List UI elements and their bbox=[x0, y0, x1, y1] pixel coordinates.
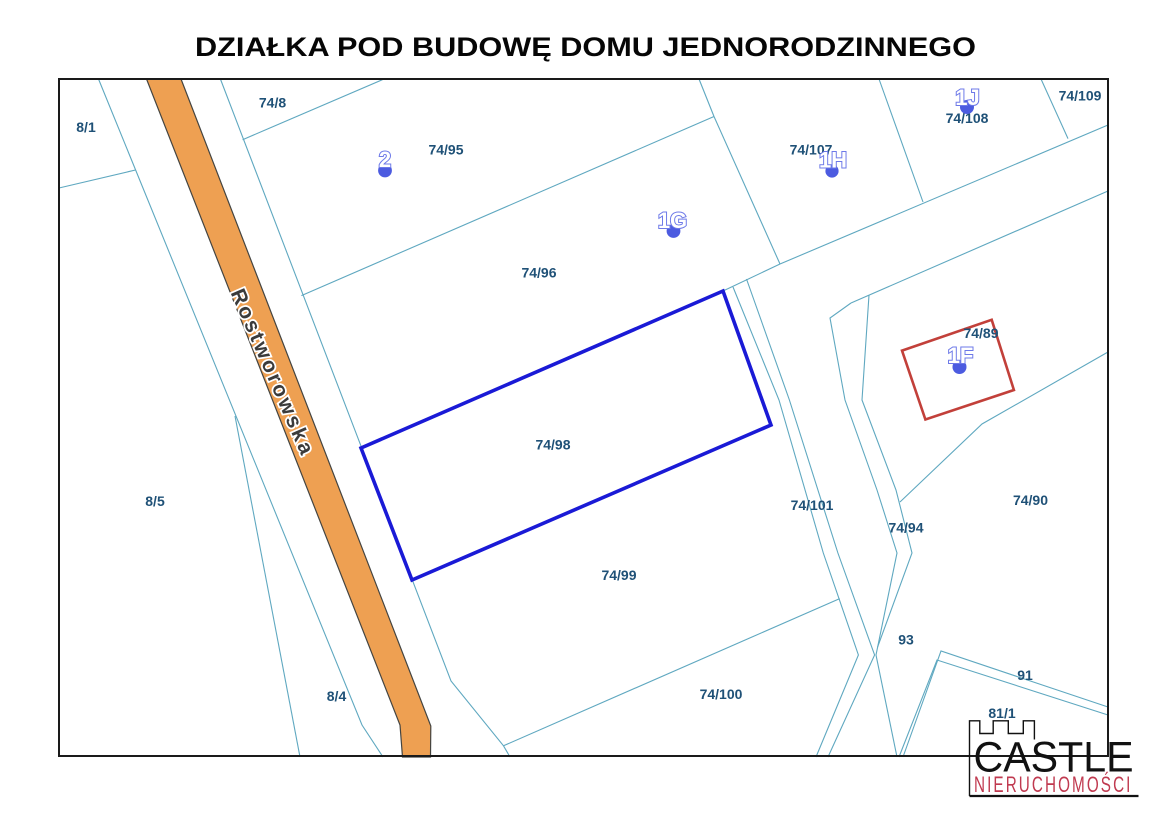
svg-text:1J: 1J bbox=[955, 85, 979, 110]
svg-text:74/94: 74/94 bbox=[888, 520, 923, 536]
svg-text:1G: 1G bbox=[658, 208, 687, 233]
svg-text:DZIAŁKA POD BUDOWĘ DOMU JEDNOR: DZIAŁKA POD BUDOWĘ DOMU JEDNORODZINNEGO bbox=[195, 32, 976, 62]
svg-text:8/5: 8/5 bbox=[145, 493, 165, 509]
svg-text:74/95: 74/95 bbox=[428, 142, 463, 158]
svg-text:74/98: 74/98 bbox=[535, 437, 570, 453]
svg-text:1H: 1H bbox=[819, 148, 847, 173]
svg-text:74/96: 74/96 bbox=[521, 265, 556, 281]
svg-text:8/1: 8/1 bbox=[76, 119, 96, 135]
svg-text:74/89: 74/89 bbox=[963, 325, 998, 341]
svg-text:74/90: 74/90 bbox=[1013, 492, 1048, 508]
svg-text:74/109: 74/109 bbox=[1059, 88, 1102, 104]
svg-text:2: 2 bbox=[379, 147, 391, 172]
svg-text:74/8: 74/8 bbox=[259, 95, 286, 111]
svg-text:74/101: 74/101 bbox=[791, 497, 834, 513]
svg-text:74/100: 74/100 bbox=[700, 686, 743, 702]
svg-text:93: 93 bbox=[898, 632, 914, 648]
svg-text:NIERUCHOMOŚCI: NIERUCHOMOŚCI bbox=[974, 772, 1133, 797]
svg-text:81/1: 81/1 bbox=[988, 705, 1015, 721]
svg-text:91: 91 bbox=[1017, 667, 1033, 683]
svg-text:74/99: 74/99 bbox=[601, 567, 636, 583]
svg-text:1F: 1F bbox=[948, 343, 974, 368]
svg-text:8/4: 8/4 bbox=[327, 688, 347, 704]
